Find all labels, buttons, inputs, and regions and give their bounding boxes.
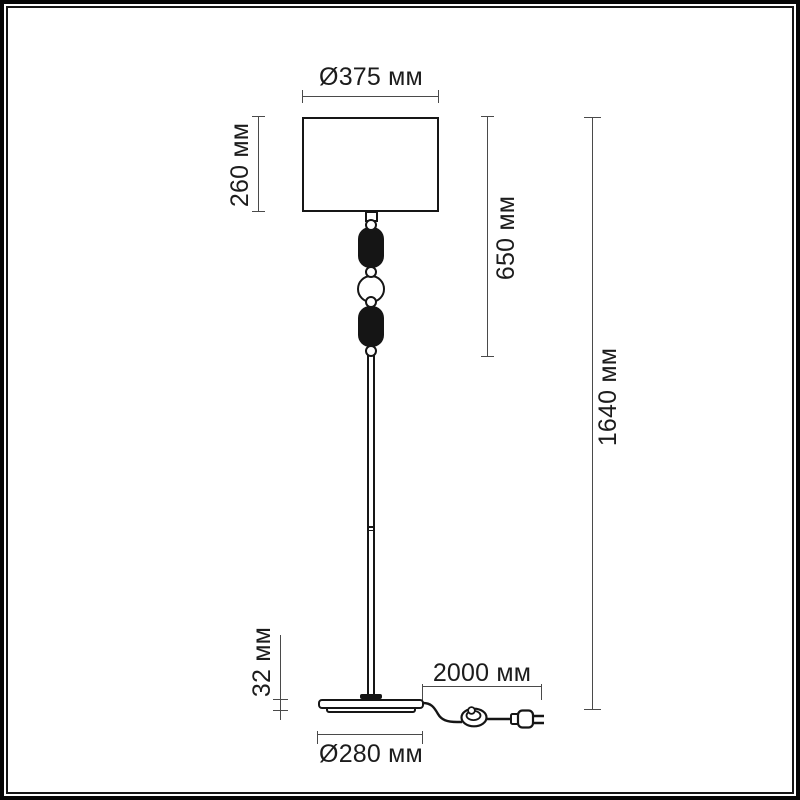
plug-prongs [533, 716, 544, 723]
label-upper-section-height: 650 мм [491, 177, 521, 299]
lamp-base [318, 699, 424, 709]
stem-bead [365, 219, 377, 231]
lamp-shade [302, 117, 439, 212]
label-total-height: 1640 мм [593, 331, 623, 463]
label-base-diameter: Ø280 мм [300, 739, 442, 769]
dim-tick [584, 709, 601, 710]
dim-line-shade-diameter [303, 96, 439, 97]
dimension-drawing-canvas: Ø375 мм 260 мм 650 мм 1640 мм 32 мм 2000… [0, 0, 800, 800]
dim-tick [584, 117, 601, 118]
dim-line-base-height [280, 635, 281, 720]
power-cable-assembly [408, 694, 558, 736]
stem-capsule-upper [358, 227, 384, 268]
dim-tick [481, 356, 494, 357]
lamp-pole [367, 353, 375, 697]
stem-bead [365, 345, 377, 357]
cable-segment [423, 703, 462, 722]
stem-capsule-lower [358, 306, 384, 347]
label-shade-height: 260 мм [225, 104, 255, 226]
pole-joint-line [367, 526, 375, 528]
dim-line-shade-height [258, 117, 259, 212]
plug-body-icon [518, 711, 533, 728]
label-cable-length: 2000 мм [412, 658, 552, 688]
pole-joint-line [367, 530, 375, 532]
label-shade-diameter: Ø375 мм [291, 62, 451, 92]
dim-tick [481, 116, 494, 117]
dim-line-upper-section [487, 117, 488, 357]
label-base-height: 32 мм [247, 612, 277, 712]
stem-bead [365, 266, 377, 278]
stem-bead [365, 296, 377, 308]
